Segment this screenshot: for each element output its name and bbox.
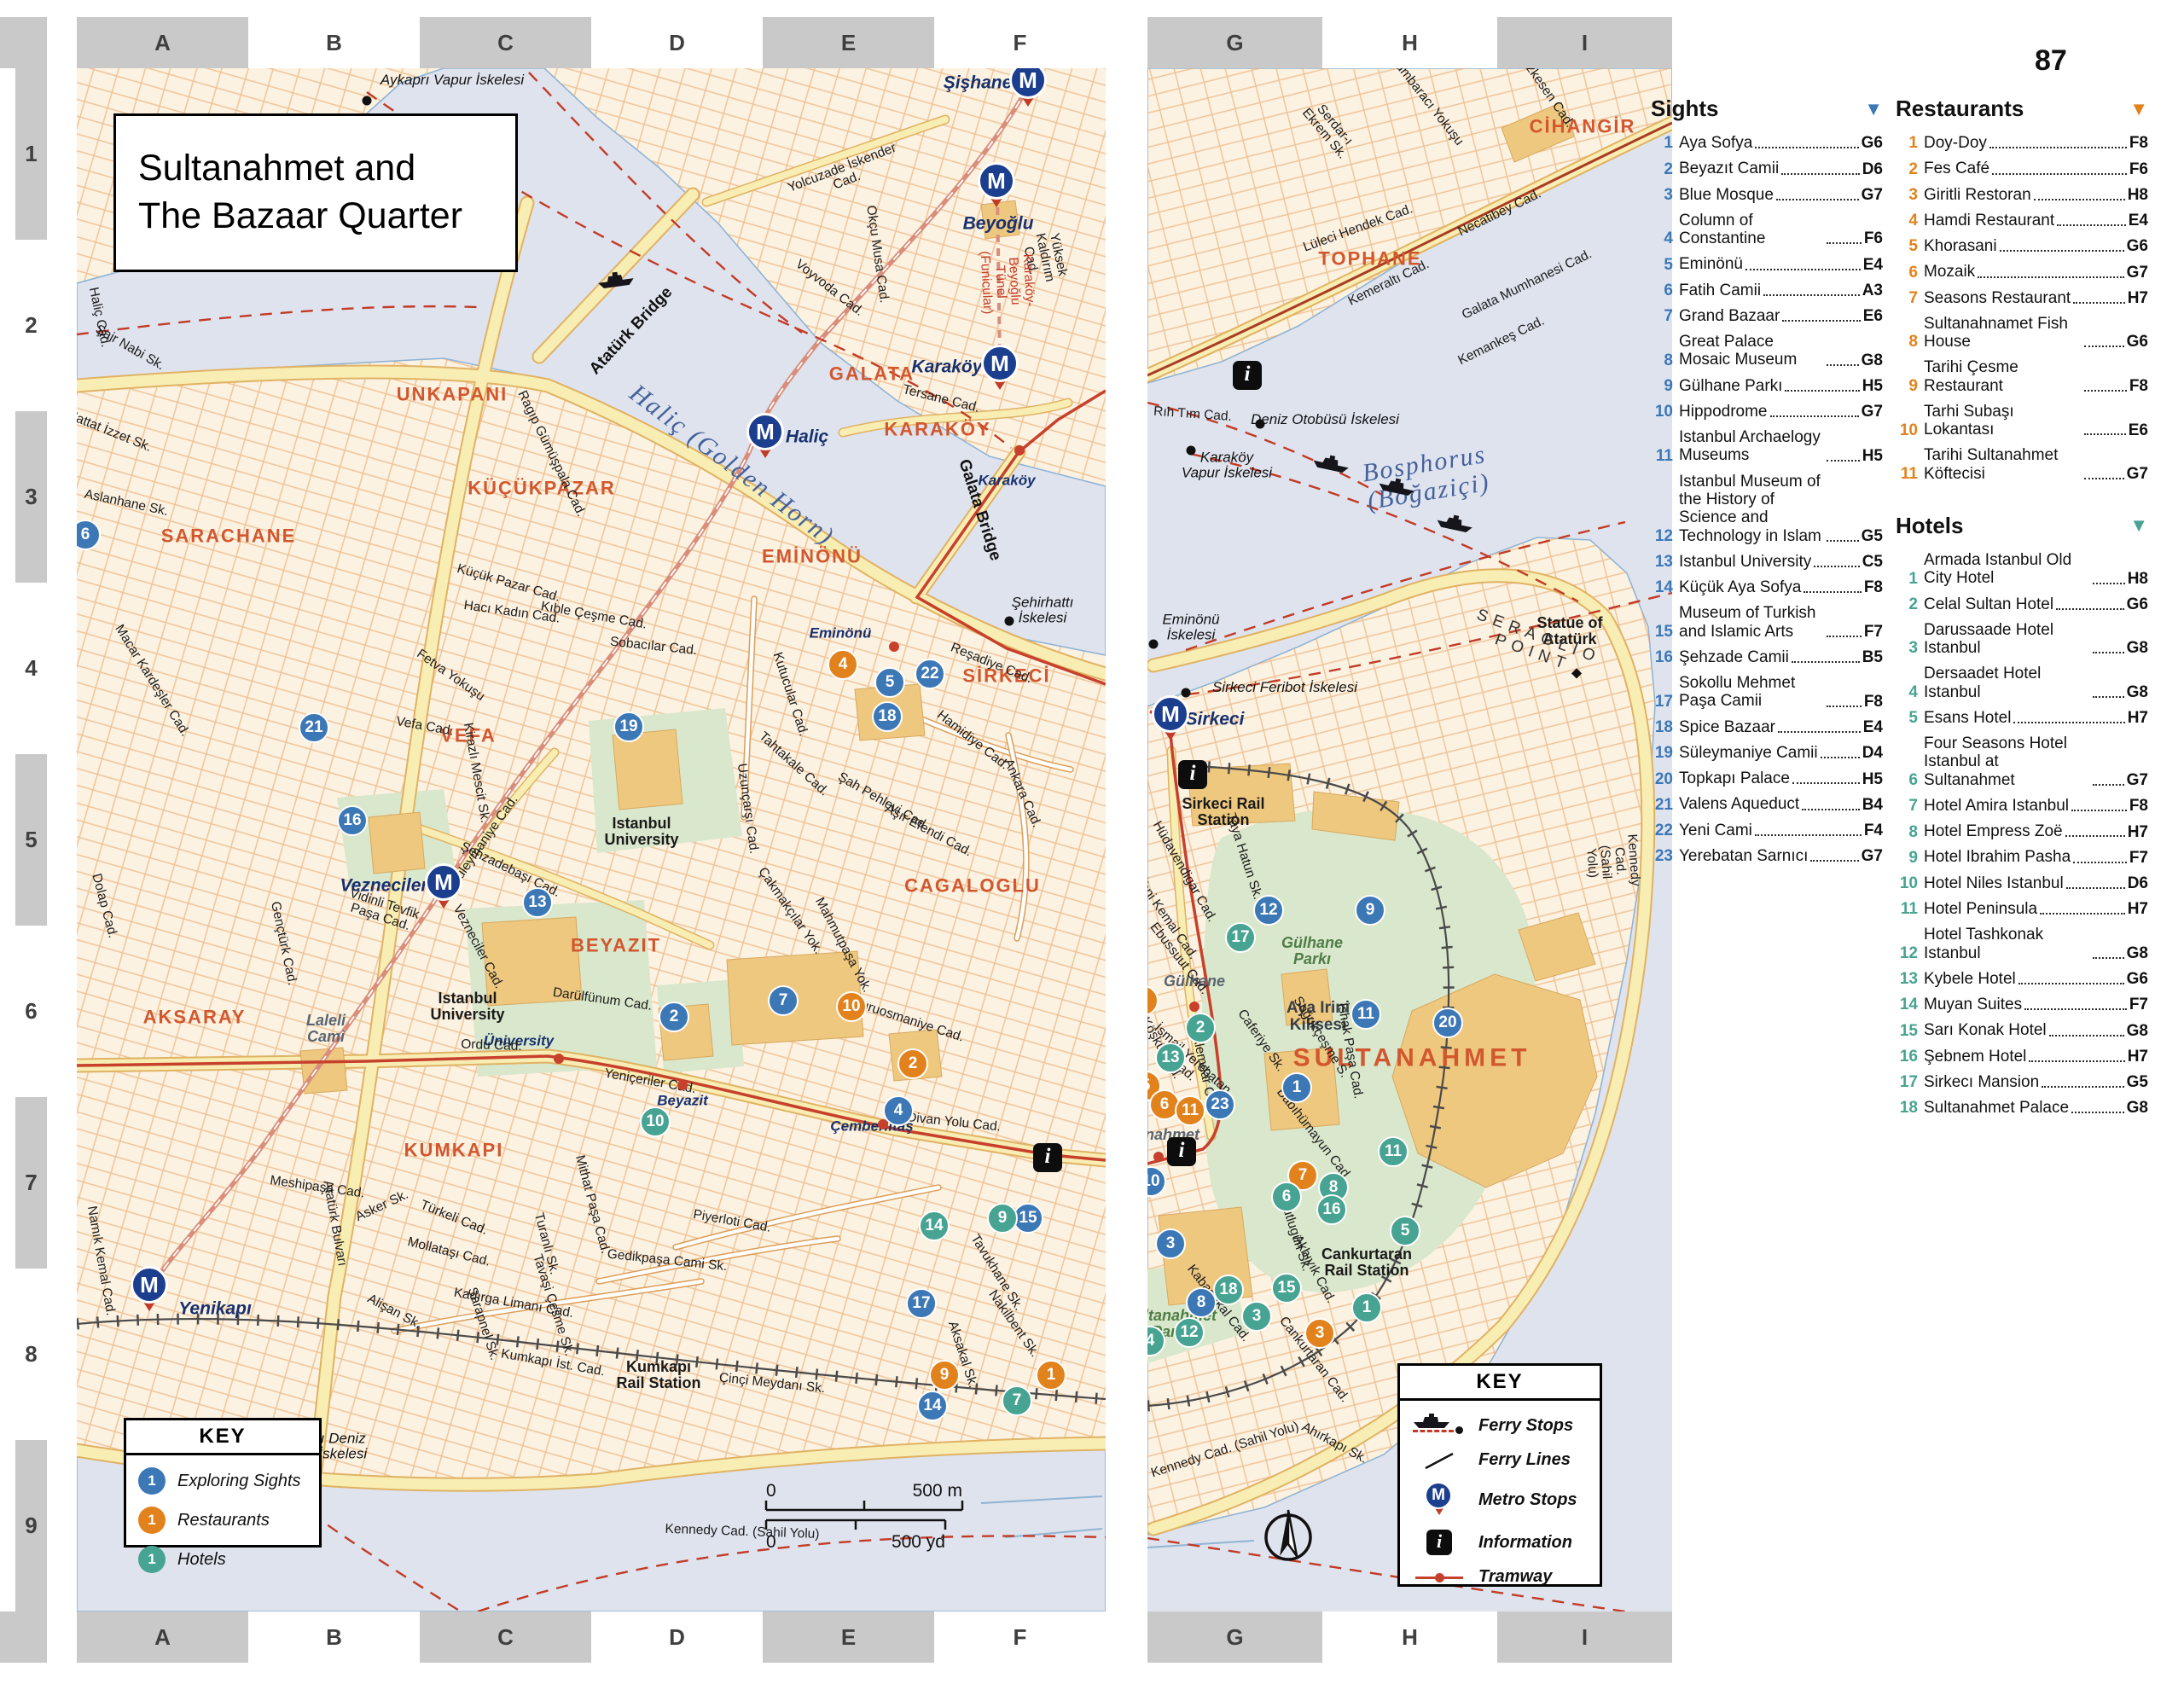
map-label: Haliç (Golden Horn): [624, 379, 839, 551]
grid-row-2: 2: [15, 240, 47, 411]
list-item: 18Sultanahmet PalaceG8: [1896, 1099, 2148, 1117]
hotel-marker-9: 9: [987, 1203, 1018, 1234]
grid-col-E: E: [763, 1611, 934, 1663]
restaurant-marker-10: 10: [836, 991, 867, 1022]
map-label: Nuruosmaniye Cad.: [850, 996, 965, 1045]
list-item: 14Küçük Aya SofyaF8: [1651, 578, 1883, 596]
map-label: Istanbul University: [604, 816, 678, 848]
ruler-corner-top: [0, 17, 47, 68]
map-label: CAGALOGLU: [904, 875, 1041, 895]
map-label: Atatürk Bridge: [587, 284, 677, 378]
grid-col-A: A: [77, 17, 248, 68]
list-item: 10Tarhi Subaşı LokantasıE6: [1896, 403, 2148, 439]
map-label: Okçu Musa Cad.: [863, 205, 891, 305]
list-item: 9Hotel Ibrahim PashaF7: [1896, 848, 2148, 866]
tram-stop-dot: [1014, 445, 1025, 456]
list-item: 5Esans HotelH7: [1896, 709, 2148, 727]
compass-rose: [1258, 1505, 1319, 1566]
map-label: Eminönü İskelesi: [1162, 613, 1219, 644]
map-label: Kennedy Cad. (Sahil Yolu): [1583, 830, 1642, 893]
map-label: Türkeli Cad.: [418, 1199, 490, 1238]
map-label: Beyazit: [657, 1093, 708, 1107]
grid-col-G: G: [1147, 17, 1322, 68]
list-header-sights: Sights▼: [1651, 96, 1883, 122]
map-label: KÜÇÜKPAZAR: [468, 478, 616, 497]
key-title: KEY: [1400, 1366, 1600, 1401]
map-label: Aslanhane Sk.: [83, 488, 169, 520]
map-label: Cankurtaran Rail Station: [1321, 1246, 1412, 1279]
restaurant-marker-1: 1: [1036, 1360, 1066, 1391]
sight-marker-5: 5: [874, 667, 905, 698]
map-label: Meshipaşa Cad.: [269, 1174, 365, 1201]
list-item: 10HippodromeG7: [1651, 403, 1883, 421]
sight-marker-17: 17: [906, 1288, 937, 1319]
map-label: Istanbul University: [430, 990, 504, 1023]
metro-station-icon: M: [425, 863, 462, 911]
list-item: 1Aya SofyaG6: [1651, 134, 1883, 152]
map-label: Tahtakale Cad.: [756, 729, 831, 798]
grid-col-D: D: [591, 17, 763, 68]
map-label: Haliç: [786, 427, 828, 445]
information-icon: i: [1033, 1143, 1062, 1172]
key-item: iInformation: [1412, 1530, 1588, 1555]
hotel-marker-16: 16: [1316, 1194, 1347, 1225]
key-title: KEY: [126, 1420, 319, 1455]
information-icon: i: [1233, 361, 1262, 390]
ruler-corner-bottom: [0, 1611, 47, 1663]
list-item: 11Hotel PeninsulaH7: [1896, 900, 2148, 918]
list-item: 16Şebnem HotelH7: [1896, 1048, 2148, 1066]
list-item: 3Giritli RestoranH8: [1896, 186, 2148, 204]
restaurant-marker-8: 8: [1147, 985, 1159, 1016]
svg-text:0: 0: [766, 1483, 776, 1501]
map-label: Deniz Otobüsü İskelesi: [1251, 412, 1399, 427]
list-item: 10Hotel Niles IstanbulD6: [1896, 874, 2148, 892]
map-label: Hamidiye Cad.: [934, 708, 1011, 772]
map-title-box: Sultanahmet and The Bazaar Quarter: [113, 113, 518, 272]
metro-icon: M: [1412, 1482, 1467, 1518]
sight-marker-21: 21: [299, 712, 329, 743]
sight-marker-3: 3: [1155, 1228, 1186, 1259]
grid-col-I: I: [1497, 1611, 1672, 1663]
list-item: 18Spice BazaarE4: [1651, 718, 1883, 736]
list-item: 5EminönüE4: [1651, 255, 1883, 273]
list-item: 17Sokollu Mehmet Paşa CamiiF8: [1651, 674, 1883, 711]
sight-marker-18: 18: [872, 701, 903, 732]
map-label: Kumkapı Rail Station: [616, 1359, 700, 1391]
restaurant-marker-4: 4: [828, 649, 858, 680]
metro-station-icon: M: [978, 162, 1015, 210]
tram-stop-dot: [677, 1080, 688, 1090]
restaurant-marker-3: 3: [1304, 1318, 1335, 1349]
list-item: 15Museum of Turkish and Islamic ArtsF7: [1651, 604, 1883, 641]
key-item: 1Restaurants: [138, 1507, 307, 1534]
map-label: Rıh Tım Cad.: [1153, 405, 1233, 425]
hotel-marker-13: 13: [1155, 1042, 1186, 1073]
map-label: Şair Nabi Sk.: [93, 322, 166, 373]
grid-row-3: 3: [15, 411, 47, 583]
list-item: 12Hotel Tashkonak IstanbulG8: [1896, 926, 2148, 962]
map-label: Karaköy: [978, 473, 1035, 487]
grid-col-B: B: [248, 1611, 420, 1663]
sight-marker-10: 10: [1147, 1166, 1166, 1197]
map-label: Kumbaracı Yokuşu: [1387, 68, 1466, 148]
hotel-marker-2: 2: [1185, 1013, 1216, 1043]
key-item: 1Hotels: [138, 1546, 307, 1573]
sight-marker-6: 6: [77, 520, 101, 550]
sight-marker-22: 22: [915, 659, 945, 689]
map-label: Dolap Cad.: [89, 872, 119, 939]
map-label: Kennedy Cad. (Sahil Yolu): [1149, 1420, 1300, 1480]
sort-triangle-icon: ▼: [1864, 98, 1883, 120]
legend-column-restaurants-hotels: Restaurants▼1Doy-DoyF82Fes CaféF63Giritl…: [1896, 96, 2148, 1124]
map-label: Kutucular Cad.: [770, 651, 810, 739]
page-number: 87: [2035, 44, 2067, 78]
svg-text:500 m: 500 m: [913, 1483, 962, 1501]
grid-col-D: D: [591, 1611, 763, 1663]
map-label: Kemankeş Cad.: [1456, 315, 1547, 369]
sort-triangle-icon: ▼: [2129, 514, 2148, 537]
list-item: 3Darussaade Hotel IstanbulG8: [1896, 621, 2148, 658]
list-item: 17Sirkecı MansionG5: [1896, 1073, 2148, 1091]
map-label: Çakmakçılar Yok.: [755, 865, 825, 956]
ferry-icon: [1412, 1413, 1467, 1438]
sight-marker-13: 13: [522, 887, 553, 918]
hotel-marker-18: 18: [1213, 1275, 1244, 1305]
key-box-categories: KEY 1Exploring Sights1Restaurants1Hotels: [124, 1418, 322, 1548]
sight-marker-16: 16: [337, 805, 368, 836]
information-icon: i: [1412, 1530, 1467, 1555]
list-item: 5KhorasaniG6: [1896, 237, 2148, 255]
tram-stop-dot: [1189, 1002, 1199, 1012]
list-item: 7Hotel Amira IstanbulF8: [1896, 797, 2148, 815]
grid-row-8: 8: [15, 1269, 47, 1440]
information-icon: i: [1167, 1137, 1196, 1166]
map-label: Yolcuzade İskender Cad.: [786, 142, 903, 209]
ferry-boat-icon: [596, 269, 636, 294]
list-item: 21Valens AqueductB4: [1651, 795, 1883, 813]
list-item: 9Gülhane ParkıH5: [1651, 377, 1883, 395]
list-item: 16Şehzade CamiiB5: [1651, 648, 1883, 666]
map-label: SARACHANE: [161, 526, 297, 545]
map-label: Tersane Cad.: [901, 383, 980, 415]
list-item: 1Armada Istanbul Old City HotelH8: [1896, 551, 2148, 588]
map-overlay-left: UNKAPANIKÜÇÜKPAZARSARACHANEEMİNÖNÜVEFAGA…: [77, 68, 1106, 1611]
grid-col-F: F: [934, 17, 1106, 68]
hotel-marker-3: 3: [1241, 1301, 1272, 1332]
ferry-stop-dot: [1005, 617, 1014, 626]
key-item: MMetro Stops: [1412, 1482, 1588, 1518]
list-item: 1Doy-DoyF8: [1896, 134, 2148, 152]
key-item: Ferry Lines: [1412, 1450, 1588, 1470]
list-item: 3Blue MosqueG7: [1651, 186, 1883, 204]
sight-marker-8: 8: [1186, 1287, 1217, 1318]
tram-stop-dot: [878, 1119, 888, 1129]
sight-marker-11: 11: [1350, 999, 1381, 1030]
map-label: Eminönü: [810, 625, 872, 640]
map-label: GALATA: [829, 363, 915, 383]
ferry-stop-dot: [1256, 420, 1265, 429]
map-label: BEYAZIT: [571, 935, 661, 955]
metro-station-icon: M: [1009, 68, 1047, 109]
map-label: Çinçi Meydanı Sk.: [718, 1371, 826, 1396]
guidebook-map-page: ABCDEFGHI ABCDEFGHI 123456789: [0, 0, 2184, 1684]
metro-station-icon: M: [746, 413, 784, 461]
grid-row-6: 6: [15, 926, 47, 1097]
hotel-marker-6: 6: [1271, 1182, 1302, 1212]
grid-col-C: C: [420, 17, 591, 68]
map-label: Şehirhattı İskelesi: [1012, 595, 1074, 627]
list-item: 6Four Seasons Hotel Istanbul at Sultanah…: [1896, 735, 2148, 789]
map-label: Aykaprı Vapur İskelesi: [380, 73, 524, 88]
sight-marker-19: 19: [613, 711, 644, 742]
tramway-icon: [1412, 1572, 1467, 1582]
sight-marker-2: 2: [659, 1002, 689, 1032]
hotel-marker-5: 5: [1390, 1216, 1420, 1246]
grid-row-9: 9: [15, 1440, 47, 1611]
map-label: AKSARAY: [143, 1007, 247, 1026]
list-item: 12Istanbul Museum of the History of Scie…: [1651, 473, 1883, 545]
map-label: Caferiye Sk.: [1234, 1007, 1287, 1074]
map-label: Galata Mumhanesi Cad.: [1460, 247, 1594, 322]
map-label: Laleli Cami: [306, 1013, 346, 1045]
map-label: Yenikapı: [178, 1299, 252, 1317]
ferry-boat-icon: [1434, 511, 1475, 539]
map-label: KARAKÖY: [884, 419, 990, 438]
map-label: Vezneciler Cad.: [450, 903, 505, 990]
ferry-stop-dot: [1149, 640, 1159, 649]
map-label: Bosphorus (Boğaziçi): [1301, 431, 1553, 525]
restaurant-marker-2: 2: [897, 1048, 928, 1079]
list-item: 4Hamdi RestaurantE4: [1896, 212, 2148, 229]
list-item: 9Tarihi Çesme RestaurantF8: [1896, 358, 2148, 395]
map-label: Ahırkapı Sk.: [1299, 1420, 1369, 1466]
grid-col-C: C: [420, 1611, 591, 1663]
map-label: CİHANGİR: [1530, 116, 1636, 136]
sight-marker-14: 14: [917, 1391, 948, 1421]
metro-station-icon: M: [131, 1266, 168, 1314]
map-label: Aşır Efendi Cad.: [882, 802, 973, 859]
map-label: UNKAPANI: [397, 384, 508, 404]
list-item: 2Beyazıt CamiiD6: [1651, 160, 1883, 177]
list-header-restaurants: Restaurants▼: [1896, 96, 2148, 122]
grid-col-H: H: [1322, 17, 1497, 68]
ferry-stop-dot: [1187, 446, 1196, 456]
sight-marker-icon: 1: [138, 1467, 166, 1495]
list-item: 4Dersaadet Hotel IstanbulG8: [1896, 665, 2148, 701]
map-label: Sobacılar Cad.: [609, 636, 698, 659]
sight-marker-20: 20: [1432, 1007, 1463, 1038]
grid-col-A: A: [77, 1611, 248, 1663]
key-item: Tramway: [1412, 1567, 1588, 1587]
list-item: 8Sultanahnamet Fish HouseG6: [1896, 315, 2148, 351]
map-label: ◆: [1571, 665, 1582, 681]
tram-stop-dot: [554, 1054, 564, 1064]
grid-col-I: I: [1497, 17, 1672, 68]
list-item: 6Fatih CamiiA3: [1651, 282, 1883, 299]
list-item: 8Hotel Empress ZoëH7: [1896, 822, 2148, 840]
grid-row-4: 4: [15, 583, 47, 754]
ferry-stop-dot: [1182, 688, 1191, 698]
grid-col-B: B: [248, 17, 420, 68]
hotel-marker-14: 14: [919, 1211, 950, 1241]
map-label: Ragıp Gümüşpala Cad.: [514, 389, 588, 520]
list-item: 11Istanbul Archaelogy MuseumsH5: [1651, 428, 1883, 465]
grid-col-G: G: [1147, 1611, 1322, 1663]
map-label: Karaköy: [912, 357, 983, 375]
list-item: 7Seasons RestaurantH7: [1896, 289, 2148, 307]
map-label: Ordu Cad.: [461, 1038, 522, 1054]
map-title: Sultanahmet and The Bazaar Quarter: [116, 145, 462, 241]
map-label: Sirkeci Feribot İskelesi: [1212, 680, 1357, 695]
map-label: Serdar-ı Ekrem Sk.: [1299, 97, 1360, 162]
map-label: Alişan Sk.: [365, 1292, 423, 1333]
list-item: 11Tarihi Sultanahmet KöftecisiG7: [1896, 446, 2148, 483]
map-label: Uzunçarşı Cad.: [735, 763, 761, 855]
map-label: Gülhane Parkı: [1281, 935, 1343, 967]
svg-text:500 yd: 500 yd: [892, 1532, 945, 1552]
list-header-hotels: Hotels▼: [1896, 513, 2148, 539]
list-item: 13Istanbul UniversityC5: [1651, 553, 1883, 571]
ferry-line-icon: [1412, 1451, 1467, 1470]
list-item: 7Grand BazaarE6: [1651, 307, 1883, 325]
map-label: Sirkeci Rail Station: [1182, 796, 1264, 828]
map-label: Karaköy-Beyoğlu Tünel (Funicular): [976, 230, 1038, 332]
hotel-marker-10: 10: [640, 1106, 671, 1137]
grid-col-H: H: [1322, 1611, 1497, 1663]
grid-row-1: 1: [15, 68, 47, 240]
information-icon: i: [1178, 760, 1207, 789]
list-item: 13Kybele HotelG6: [1896, 970, 2148, 988]
map-label: Mithat Paşa Cad.: [572, 1153, 612, 1255]
list-item: 14Muyan SuitesF7: [1896, 996, 2148, 1013]
ferry-stop-dot: [363, 96, 372, 106]
sight-marker-1: 1: [1281, 1072, 1312, 1103]
key-box-transport: KEY Ferry StopsFerry LinesMMetro StopsiI…: [1397, 1363, 1602, 1587]
map-label: KUMKAPI: [404, 1140, 504, 1159]
hotel-marker-17: 17: [1225, 922, 1256, 953]
list-item: 6MozaikG7: [1896, 263, 2148, 281]
list-item: 23Yerebatan SarnıcıG7: [1651, 847, 1883, 865]
map-label: Şişhane: [944, 73, 1013, 91]
sight-marker-12: 12: [1253, 895, 1284, 926]
list-item: 19Süleymaniye CamiiD4: [1651, 744, 1883, 762]
sort-triangle-icon: ▼: [2129, 98, 2148, 120]
map-label: Kumkapı İst. Cad.: [500, 1347, 606, 1379]
sight-marker-23: 23: [1205, 1089, 1235, 1120]
map-label: Kıble Çeşme Cad.: [540, 600, 648, 632]
hotel-marker-11: 11: [1378, 1136, 1409, 1167]
hotel-marker-1: 1: [1351, 1292, 1382, 1323]
metro-station-icon: M: [1152, 695, 1189, 743]
map-label: Darülfünum Cad.: [552, 986, 653, 1013]
map-label: Ankara Cad.: [1001, 757, 1043, 829]
map-label: Voyvoda Cad.: [793, 258, 866, 319]
scale-bar: 0 500 m 0 500 yd: [758, 1483, 973, 1558]
map-label: Karaköy Vapur İskelesi: [1182, 450, 1272, 482]
map-label: Fetva Yokuşu: [414, 647, 487, 705]
map-label: Divan Yolu Cad.: [906, 1111, 1001, 1135]
map-label: Namık Kemal Cad.: [84, 1205, 118, 1317]
grid-col-E: E: [763, 17, 934, 68]
hotel-marker-15: 15: [1271, 1273, 1302, 1304]
list-item: 15Sarı Konak HotelG8: [1896, 1021, 2148, 1039]
map-label: Gençtürk Cad.: [268, 900, 299, 986]
map-label: Hattat İzzet Sk.: [77, 409, 154, 455]
hotel-marker-icon: 1: [138, 1546, 166, 1573]
grid-row-7: 7: [15, 1097, 47, 1269]
tram-stop-dot: [1153, 1152, 1164, 1162]
sight-marker-9: 9: [1355, 895, 1385, 926]
map-label: Sirkeci: [1186, 710, 1245, 728]
tram-stop-dot: [889, 642, 899, 652]
list-item: 2Celal Sultan HotelG6: [1896, 595, 2148, 613]
map-label: Mollataşı Cad.: [406, 1235, 491, 1269]
list-item: 22Yeni CamiF4: [1651, 822, 1883, 839]
map-label: Gedikpaşa Cami Sk.: [607, 1248, 728, 1275]
sight-marker-7: 7: [768, 985, 799, 1016]
grid-col-F: F: [934, 1611, 1106, 1663]
list-item: 20Topkapı PalaceH5: [1651, 769, 1883, 787]
grid-row-5: 5: [15, 754, 47, 926]
legend-column-sights: Sights▼1Aya SofyaG62Beyazıt CamiiD63Blue…: [1651, 96, 1883, 873]
key-item: Ferry Stops: [1412, 1413, 1588, 1438]
restaurant-marker-9: 9: [929, 1360, 960, 1391]
svg-text:0: 0: [766, 1532, 776, 1552]
metro-station-icon: M: [981, 345, 1019, 392]
map-label: Necatibey Cad.: [1456, 187, 1543, 239]
hotel-marker-12: 12: [1174, 1317, 1205, 1348]
list-item: 8Great Palace Mosaic MuseumG8: [1651, 333, 1883, 369]
restaurant-marker-11: 11: [1175, 1095, 1205, 1126]
map-label: Macar Kardeşler Cad.: [112, 623, 192, 739]
key-item: 1Exploring Sights: [138, 1467, 307, 1495]
hotel-marker-7: 7: [1002, 1385, 1032, 1416]
map-label: Piyerloti Cad.: [692, 1208, 772, 1235]
list-item: 2Fes CaféF6: [1896, 160, 2148, 177]
restaurant-marker-icon: 1: [138, 1507, 166, 1534]
map-label: Vefa Cad.: [395, 715, 455, 739]
list-item: 4Column of ConstantineF6: [1651, 212, 1883, 248]
map-label: EMİNÖNÜ: [762, 546, 863, 566]
